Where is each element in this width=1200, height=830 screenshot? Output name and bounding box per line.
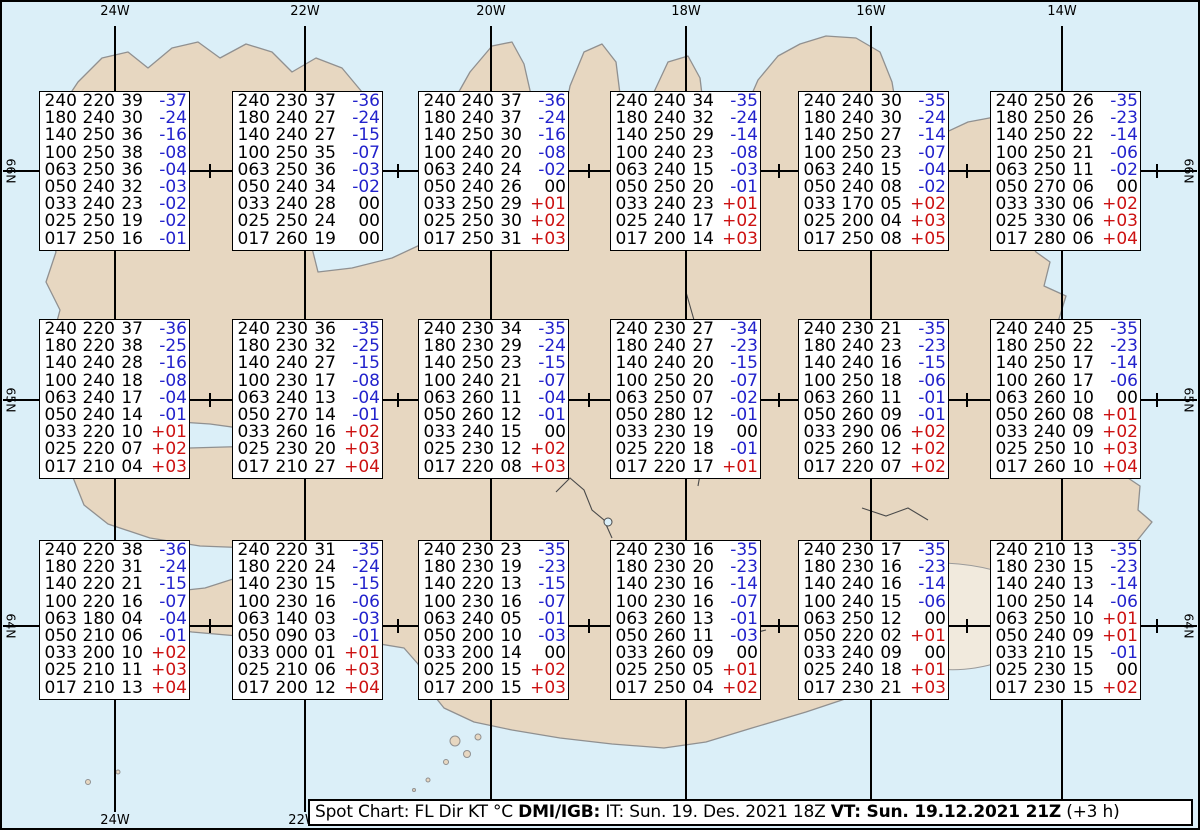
spot-row: 02524018+01: [802, 662, 948, 679]
temperature: +04: [1094, 459, 1138, 476]
wind-direction: 230: [270, 441, 308, 458]
wind-speed: 30: [494, 213, 522, 230]
wind-speed: 06: [308, 662, 336, 679]
wind-direction: 260: [1028, 459, 1066, 476]
wind-direction: 220: [648, 441, 686, 458]
meridian-label-22w-top: 22W: [290, 4, 319, 19]
temperature: 00: [336, 231, 380, 248]
temperature: +04: [336, 680, 380, 697]
meridian-label-24w-top: 24W: [100, 4, 129, 19]
wind-direction: 210: [77, 662, 115, 679]
wind-speed: 31: [494, 231, 522, 248]
spot-row: 14023015-15: [236, 576, 382, 593]
spot-row: 14024013-14: [994, 576, 1140, 593]
wind-direction: 250: [270, 213, 308, 230]
wind-direction: 250: [456, 213, 494, 230]
spot-row: 14024016-15: [802, 355, 948, 372]
wind-direction: 230: [1028, 680, 1066, 697]
temperature: +02: [522, 662, 566, 679]
flight-level: 017: [994, 680, 1028, 697]
wind-direction: 200: [270, 680, 308, 697]
spot-row: 02525030+02: [422, 213, 568, 230]
spot-row: 02525010+03: [994, 441, 1140, 458]
wind-speed: 21: [874, 680, 902, 697]
flight-level: 017: [43, 680, 77, 697]
spot-row: 14025030-16: [422, 127, 568, 144]
latitude-label-64n-left: 64N: [4, 613, 19, 638]
spot-row: 14025023-15: [422, 355, 568, 372]
spot-box-r0c2: 24024037-3618024037-2414025030-161002402…: [418, 91, 569, 251]
flight-level: 025: [802, 213, 836, 230]
spot-box-r2c3: 24023016-3518023020-2314023016-141002301…: [610, 540, 761, 700]
temperature: +03: [1094, 441, 1138, 458]
wind-direction: 330: [1028, 213, 1066, 230]
footer-issue-time: IT: Sun. 19. Des. 2021 18Z: [600, 802, 831, 822]
temperature: -01: [143, 231, 187, 248]
temperature: +03: [336, 441, 380, 458]
latitude-label-66n-left: 66N: [4, 158, 19, 183]
wind-speed: 11: [115, 662, 143, 679]
flight-level: 025: [43, 441, 77, 458]
wind-speed: 10: [1066, 459, 1094, 476]
wind-direction: 210: [77, 459, 115, 476]
spot-row: 14022013-15: [422, 576, 568, 593]
spot-row: 02525005+01: [614, 662, 760, 679]
spot-row: 02521011+03: [43, 662, 189, 679]
wind-speed: 27: [308, 459, 336, 476]
latitude-label-65n-left: 65N: [4, 387, 19, 412]
flight-level: 017: [802, 459, 836, 476]
spot-row: 01720014+03: [614, 231, 760, 248]
wind-speed: 08: [874, 231, 902, 248]
wind-direction: 230: [1028, 662, 1066, 679]
latitude-label-64n-right: 64N: [1182, 613, 1197, 638]
spot-box-r0c3: 24024034-3518024032-2414025029-141002402…: [610, 91, 761, 251]
latitude-label-66n-right: 66N: [1182, 158, 1197, 183]
wind-direction: 250: [77, 231, 115, 248]
temperature: +04: [1094, 231, 1138, 248]
flight-level: 025: [614, 213, 648, 230]
spot-box-r1c5: 24024025-3518025022-2314025017-141002601…: [990, 319, 1141, 479]
spot-row: 01722008+03: [422, 459, 568, 476]
meridian-label-24w-bottom: 24W: [100, 813, 129, 828]
flight-level: 017: [614, 680, 648, 697]
wind-direction: 200: [456, 680, 494, 697]
flight-level: 017: [236, 231, 270, 248]
wind-direction: 250: [648, 680, 686, 697]
spot-row: 02523012+02: [422, 441, 568, 458]
latitude-label-65n-right: 65N: [1182, 387, 1197, 412]
spot-box-r0c1: 24023037-3618024027-2414024027-151002503…: [232, 91, 383, 251]
temperature: +02: [143, 441, 187, 458]
flight-level: 025: [422, 441, 456, 458]
spot-box-r0c0: 24022039-3718024030-2414025036-161002503…: [39, 91, 190, 251]
temperature: +03: [714, 231, 758, 248]
flight-level: 017: [614, 459, 648, 476]
flight-level: 025: [614, 441, 648, 458]
temperature: +03: [522, 231, 566, 248]
wind-speed: 16: [115, 231, 143, 248]
flight-level: 025: [422, 662, 456, 679]
spot-row: 01728006+04: [994, 231, 1140, 248]
footer-bar: Spot Chart: FL Dir KT °C DMI/IGB: IT: Su…: [308, 799, 1193, 826]
wind-direction: 240: [648, 213, 686, 230]
wind-direction: 260: [836, 441, 874, 458]
wind-speed: 12: [494, 441, 522, 458]
temperature: +03: [143, 662, 187, 679]
temperature: +03: [143, 459, 187, 476]
spot-row: 14024016-14: [802, 576, 948, 593]
spot-row: 02522018-01: [614, 441, 760, 458]
spot-row: 02526012+02: [802, 441, 948, 458]
spot-row: 01721013+04: [43, 680, 189, 697]
wind-speed: 15: [494, 680, 522, 697]
wind-speed: 15: [1066, 680, 1094, 697]
spot-box-r1c1: 24023036-3518023032-2514024027-151002301…: [232, 319, 383, 479]
wind-speed: 12: [874, 441, 902, 458]
footer-offset: (+3 h): [1061, 802, 1120, 822]
temperature: +02: [714, 213, 758, 230]
temperature: +02: [902, 441, 946, 458]
flight-level: 025: [994, 441, 1028, 458]
wind-speed: 04: [874, 213, 902, 230]
spot-row: 14025017-14: [994, 355, 1140, 372]
wind-speed: 15: [1066, 662, 1094, 679]
spot-row: 02524017+02: [614, 213, 760, 230]
temperature: +02: [522, 213, 566, 230]
spot-box-r1c2: 24023034-3518023029-2414025023-151002402…: [418, 319, 569, 479]
wind-direction: 260: [270, 231, 308, 248]
wind-speed: 17: [686, 459, 714, 476]
spot-row: 14024020-15: [614, 355, 760, 372]
spot-box-r0c5: 24025026-3518025026-2314025022-141002502…: [990, 91, 1141, 251]
spot-box-r2c1: 24022031-3518022024-2414023015-151002301…: [232, 540, 383, 700]
wind-direction: 230: [836, 680, 874, 697]
flight-level: 025: [236, 441, 270, 458]
wind-direction: 240: [836, 662, 874, 679]
flight-level: 025: [43, 662, 77, 679]
wind-direction: 250: [836, 231, 874, 248]
spot-row: 01725004+02: [614, 680, 760, 697]
spot-row: 14025029-14: [614, 127, 760, 144]
temperature: 00: [336, 213, 380, 230]
spot-row: 02525019-02: [43, 213, 189, 230]
spot-box-r2c4: 24023017-3518023016-2314024016-141002401…: [798, 540, 949, 700]
spot-row: 01725016-01: [43, 231, 189, 248]
wind-speed: 18: [874, 662, 902, 679]
spot-row: 01725008+05: [802, 231, 948, 248]
flight-level: 025: [43, 213, 77, 230]
spot-row: 14024027-15: [236, 127, 382, 144]
spot-box-r1c3: 24023027-3418024027-2314024020-151002502…: [610, 319, 761, 479]
flight-level: 017: [422, 459, 456, 476]
spot-box-r1c0: 24022037-3618022038-2514024028-161002401…: [39, 319, 190, 479]
spot-row: 02533006+03: [994, 213, 1140, 230]
spot-row: 02520004+03: [802, 213, 948, 230]
spot-row: 01720015+03: [422, 680, 568, 697]
temperature: +04: [143, 680, 187, 697]
spot-chart-screen: 24W 22W 20W 18W 16W 14W 24W 22W 66N 65N …: [0, 0, 1200, 830]
spot-row: 14023016-14: [614, 576, 760, 593]
flight-level: 017: [994, 231, 1028, 248]
spot-row: 02521006+03: [236, 662, 382, 679]
meridian-label-16w-top: 16W: [856, 4, 885, 19]
temperature: +04: [336, 459, 380, 476]
spot-row: 01722007+02: [802, 459, 948, 476]
flight-level: 017: [43, 231, 77, 248]
spot-row: 01721004+03: [43, 459, 189, 476]
wind-speed: 19: [115, 213, 143, 230]
wind-speed: 19: [308, 231, 336, 248]
footer-source: DMI/IGB:: [518, 802, 600, 822]
temperature: +02: [714, 680, 758, 697]
wind-direction: 250: [77, 213, 115, 230]
spot-row: 14024028-16: [43, 355, 189, 372]
temperature: +02: [902, 459, 946, 476]
spot-box-r2c2: 24023023-3518023019-2314022013-151002301…: [418, 540, 569, 700]
spot-row: 02520015+02: [422, 662, 568, 679]
wind-speed: 24: [308, 213, 336, 230]
flight-level: 025: [802, 441, 836, 458]
wind-speed: 17: [686, 213, 714, 230]
wind-direction: 250: [456, 231, 494, 248]
temperature: +02: [522, 441, 566, 458]
wind-direction: 250: [648, 662, 686, 679]
wind-speed: 04: [115, 459, 143, 476]
temperature: 00: [1094, 662, 1138, 679]
wind-direction: 210: [270, 459, 308, 476]
spot-row: 14022021-15: [43, 576, 189, 593]
temperature: +03: [522, 680, 566, 697]
flight-level: 017: [802, 680, 836, 697]
wind-direction: 220: [648, 459, 686, 476]
spot-row: 0172601900: [236, 231, 382, 248]
temperature: -02: [143, 213, 187, 230]
wind-direction: 200: [648, 231, 686, 248]
spot-row: 14025022-14: [994, 127, 1140, 144]
flight-level: 017: [43, 459, 77, 476]
wind-speed: 15: [494, 662, 522, 679]
spot-row: 14025027-14: [802, 127, 948, 144]
iceland-landmass: [44, 36, 1152, 792]
wind-speed: 14: [686, 231, 714, 248]
flight-level: 025: [236, 213, 270, 230]
wind-speed: 13: [115, 680, 143, 697]
spot-row: 01723015+02: [994, 680, 1140, 697]
spot-box-r2c5: 24021013-3518023015-2314024013-141002501…: [990, 540, 1141, 700]
spot-row: 01725031+03: [422, 231, 568, 248]
flight-level: 025: [994, 213, 1028, 230]
flight-level: 017: [422, 680, 456, 697]
temperature: +02: [1094, 680, 1138, 697]
temperature: +03: [522, 459, 566, 476]
wind-speed: 08: [494, 459, 522, 476]
flight-level: 025: [236, 662, 270, 679]
spot-row: 0252502400: [236, 213, 382, 230]
spot-row: 01723021+03: [802, 680, 948, 697]
wind-speed: 20: [308, 441, 336, 458]
temperature: +01: [902, 662, 946, 679]
wind-direction: 200: [836, 213, 874, 230]
flight-level: 017: [994, 459, 1028, 476]
spot-row: 01722017+01: [614, 459, 760, 476]
temperature: -01: [714, 441, 758, 458]
spot-row: 14024027-15: [236, 355, 382, 372]
spot-row: 02522007+02: [43, 441, 189, 458]
wind-direction: 280: [1028, 231, 1066, 248]
spot-row: 0252301500: [994, 662, 1140, 679]
meridian-label-18w-top: 18W: [671, 4, 700, 19]
offshore-islands: [86, 734, 482, 792]
flight-level: 025: [802, 662, 836, 679]
wind-direction: 210: [270, 662, 308, 679]
meridian-label-14w-top: 14W: [1047, 4, 1076, 19]
flight-level: 025: [994, 662, 1028, 679]
spot-row: 01721027+04: [236, 459, 382, 476]
flight-level: 017: [802, 231, 836, 248]
flight-level: 025: [614, 662, 648, 679]
wind-direction: 250: [1028, 441, 1066, 458]
wind-speed: 10: [1066, 441, 1094, 458]
footer-valid-time: VT: Sun. 19.12.2021 21Z: [831, 802, 1061, 822]
flight-level: 017: [236, 459, 270, 476]
temperature: +03: [336, 662, 380, 679]
wind-speed: 07: [115, 441, 143, 458]
wind-direction: 220: [836, 459, 874, 476]
wind-direction: 220: [77, 441, 115, 458]
flight-level: 017: [614, 231, 648, 248]
spot-row: 01720012+04: [236, 680, 382, 697]
temperature: +03: [902, 680, 946, 697]
spot-box-r1c4: 24023021-3518024023-2314024016-151002501…: [798, 319, 949, 479]
spot-row: 01726010+04: [994, 459, 1140, 476]
temperature: +03: [902, 213, 946, 230]
spot-row: 14025036-16: [43, 127, 189, 144]
wind-direction: 200: [456, 662, 494, 679]
spot-row: 02523020+03: [236, 441, 382, 458]
wind-speed: 07: [874, 459, 902, 476]
wind-speed: 06: [1066, 231, 1094, 248]
footer-chart-title: Spot Chart: FL Dir KT °C: [315, 802, 518, 822]
temperature: +01: [714, 662, 758, 679]
wind-speed: 05: [686, 662, 714, 679]
temperature: +03: [1094, 213, 1138, 230]
wind-speed: 04: [686, 680, 714, 697]
temperature: +01: [714, 459, 758, 476]
spot-box-r2c0: 24022038-3618022031-2414022021-151002201…: [39, 540, 190, 700]
wind-speed: 06: [1066, 213, 1094, 230]
wind-speed: 18: [686, 441, 714, 458]
flight-level: 025: [422, 213, 456, 230]
flight-level: 017: [236, 680, 270, 697]
wind-speed: 12: [308, 680, 336, 697]
meridian-label-20w-top: 20W: [476, 4, 505, 19]
wind-direction: 220: [456, 459, 494, 476]
flight-level: 017: [422, 231, 456, 248]
spot-box-r0c4: 24024030-3518024030-2414025027-141002502…: [798, 91, 949, 251]
temperature: +05: [902, 231, 946, 248]
wind-direction: 210: [77, 680, 115, 697]
wind-direction: 230: [456, 441, 494, 458]
